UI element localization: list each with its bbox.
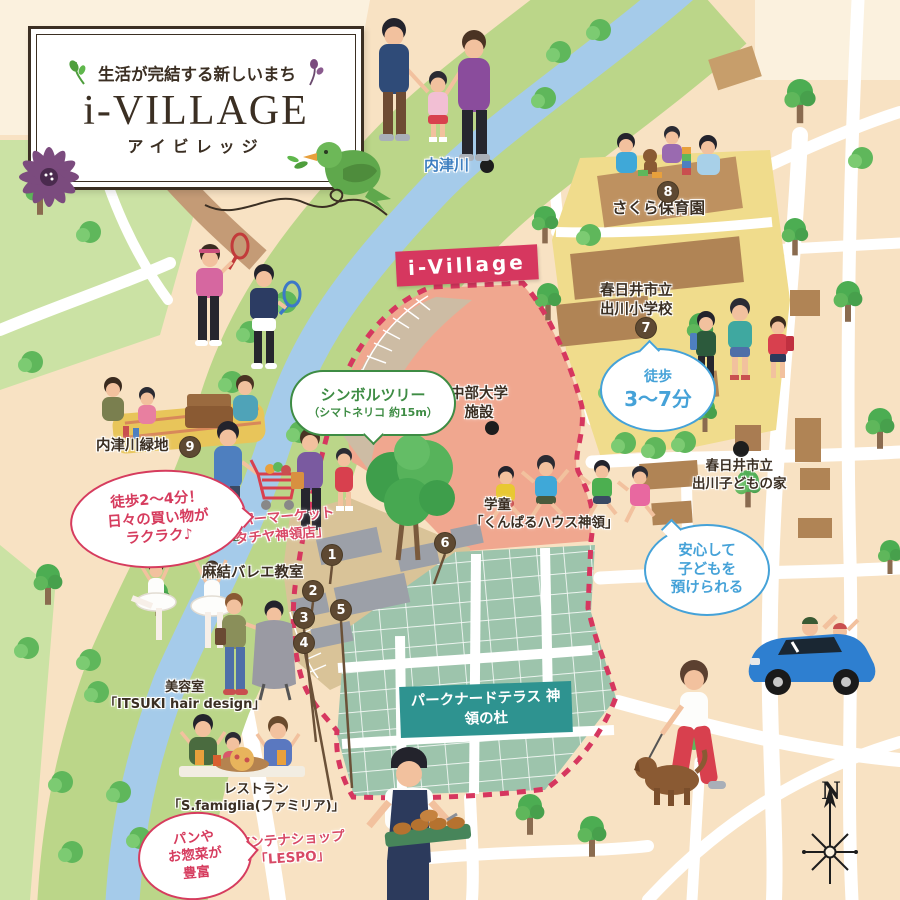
childcare-bubble: 安心して 子どもを 預けられる [644,524,770,616]
marker-7-elementary: 7 [635,317,657,339]
shop-bubble-line3: ラクラク♪ [125,526,193,549]
kodomo-line2: 出川子どもの家 [692,476,787,494]
terrace-line1: パークナードテラス [411,689,542,710]
compass-north-label: N [798,776,864,806]
ivillage-site-banner: i-Village [395,244,538,286]
title-tagline: 生活が完結する新しいまち [98,61,296,85]
purple-flower-icon [13,141,85,213]
elementary-school-label: 春日井市立 出川小学校 [600,282,673,320]
gakudo-line1: 学童 [484,497,619,515]
marker-3: 3 [293,607,315,629]
walk-bubble-line1: 徒歩 [644,368,672,386]
safe-bubble-line1: 安心して [678,542,736,561]
gakudo-line2: 「くんぱるハウス神領」 [470,515,619,533]
marker-4: 4 [293,632,315,654]
elementary-line2: 出川小学校 [600,301,673,320]
ballet-school-label: 麻結バレエ教室 [202,564,304,583]
marker-1-supermarket: 1 [321,544,343,566]
safe-bubble-line3: 預けられる [671,579,744,598]
safe-bubble-line2: 子どもを [678,561,736,580]
bakery-bubble-line3: 豊富 [182,864,210,884]
gakudo-label: 学童 「くんぱるハウス神領」 [470,497,619,532]
university-facility-label: 中部大学 施設 [450,385,508,423]
restaurant-line1: レストラン [168,782,345,799]
river-label: 内津川 [424,156,469,176]
kodomo-line1: 春日井市立 [692,458,787,476]
terrace-banner: パークナードテラス 神領の杜 [399,681,573,738]
swirl-flourish [201,177,391,223]
page-subtitle: アイビレッジ [127,133,264,157]
symbol-tree-bubble: シンボルツリー （シマトネリコ 約15m） [290,370,456,436]
univ-line2: 施設 [450,404,508,423]
elementary-line1: 春日井市立 [600,282,673,301]
green-space-label: 内津川緑地 [96,437,169,456]
marker-9-green-space: 9 [179,436,201,458]
marker-5: 5 [330,599,352,621]
compass: N [798,776,864,894]
marker-6-gakudo: 6 [434,532,456,554]
salon-line2: 「ITSUKI hair design」 [104,697,265,714]
green-sprig-icon [68,60,90,86]
restaurant-label: レストラン 「S.famiglia(ファミリア)」 [168,782,345,816]
univ-line1: 中部大学 [450,385,508,404]
thistle-icon [304,59,324,87]
walk-to-school-bubble: 徒歩 3〜7分 [600,348,716,432]
nursery-label: さくら保育園 [612,198,705,218]
title-card: 生活が完結する新しいまち i-VILLAGE アイビレッジ [28,26,364,190]
childrens-house-label: 春日井市立 出川子どもの家 [692,458,787,493]
page-title: i-VILLAGE [83,89,309,133]
tree-bubble-line2: （シマトネリコ 約15m） [308,406,438,420]
marker-2-ballet: 2 [302,580,324,602]
title-tagline-row: 生活が完結する新しいまち [68,59,324,87]
salon-line1: 美容室 [104,680,265,697]
marker-8-nursery: 8 [657,181,679,203]
hair-salon-label: 美容室 「ITSUKI hair design」 [104,680,265,714]
walk-bubble-line2: 3〜7分 [624,386,692,412]
tree-bubble-line1: シンボルツリー [320,386,425,406]
illustrated-town-map: 生活が完結する新しいまち i-VILLAGE アイビレッジ [0,0,900,900]
